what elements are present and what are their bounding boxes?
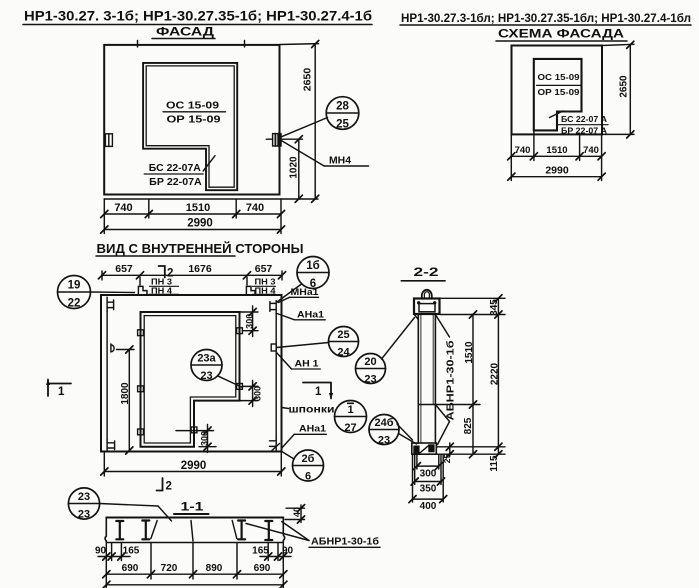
svg-text:350: 350 bbox=[420, 484, 437, 495]
svg-text:22: 22 bbox=[68, 298, 81, 310]
svg-text:23: 23 bbox=[200, 370, 212, 382]
svg-text:ОР 15-09: ОР 15-09 bbox=[538, 87, 580, 97]
svg-text:ПН 3: ПН 3 bbox=[255, 278, 277, 287]
svg-text:2650: 2650 bbox=[619, 75, 630, 98]
svg-text:АБНР1-30-1б: АБНР1-30-1б bbox=[444, 341, 456, 421]
svg-text:890: 890 bbox=[206, 563, 223, 574]
svg-text:шпонки: шпонки bbox=[289, 404, 335, 416]
svg-text:1510: 1510 bbox=[186, 202, 210, 214]
svg-text:300: 300 bbox=[420, 469, 437, 480]
svg-text:2990: 2990 bbox=[545, 165, 569, 177]
svg-text:2220: 2220 bbox=[489, 362, 500, 385]
svg-text:1510: 1510 bbox=[464, 341, 475, 364]
svg-text:2: 2 bbox=[167, 268, 173, 280]
svg-text:825: 825 bbox=[463, 417, 474, 434]
svg-text:720: 720 bbox=[161, 563, 178, 574]
svg-text:28: 28 bbox=[336, 101, 349, 113]
svg-text:ВИД С ВНУТРЕННЕЙ СТОРОНЫ: ВИД С ВНУТРЕННЕЙ СТОРОНЫ bbox=[97, 241, 304, 256]
svg-text:657: 657 bbox=[255, 263, 273, 275]
svg-text:165: 165 bbox=[123, 546, 140, 557]
svg-text:2: 2 bbox=[166, 481, 172, 493]
svg-text:2650: 2650 bbox=[301, 68, 313, 92]
svg-text:400: 400 bbox=[420, 501, 437, 512]
svg-text:23а: 23а bbox=[197, 353, 216, 365]
svg-text:1-1: 1-1 bbox=[181, 502, 205, 514]
svg-text:115: 115 bbox=[489, 455, 500, 472]
svg-text:БР 22-07 А: БР 22-07 А bbox=[561, 126, 607, 136]
svg-text:1: 1 bbox=[347, 404, 353, 416]
svg-text:165: 165 bbox=[252, 546, 269, 557]
svg-text:24: 24 bbox=[337, 347, 350, 359]
svg-text:19: 19 bbox=[68, 280, 81, 292]
svg-text:НР1-30.27. 3-1б; НР1-30.27.35: НР1-30.27. 3-1б; НР1-30.27.35-1б; НР1-30… bbox=[24, 8, 372, 24]
svg-text:ОР 15-09: ОР 15-09 bbox=[167, 114, 221, 126]
svg-text:1676: 1676 bbox=[188, 263, 212, 275]
svg-text:НР1-30.27.3-1бл; НР1-30.27.35-: НР1-30.27.3-1бл; НР1-30.27.35-1бл; НР1-3… bbox=[401, 11, 691, 25]
svg-text:25: 25 bbox=[337, 329, 349, 341]
svg-text:740: 740 bbox=[583, 145, 599, 156]
svg-text:1: 1 bbox=[58, 386, 65, 398]
svg-text:23: 23 bbox=[78, 509, 90, 521]
svg-text:740: 740 bbox=[114, 202, 132, 214]
svg-text:2б: 2б bbox=[302, 453, 315, 465]
svg-text:300: 300 bbox=[199, 431, 209, 446]
svg-text:АНа1: АНа1 bbox=[299, 424, 327, 435]
svg-text:БС 22-07 А: БС 22-07 А bbox=[561, 114, 607, 124]
svg-text:40: 40 bbox=[292, 507, 302, 517]
svg-text:АБНР1-30-1б: АБНР1-30-1б bbox=[311, 536, 380, 548]
svg-text:690: 690 bbox=[122, 563, 139, 574]
svg-text:1: 1 bbox=[315, 386, 322, 398]
svg-text:23: 23 bbox=[364, 374, 376, 386]
svg-text:АНа1: АНа1 bbox=[297, 310, 325, 321]
svg-text:БС 22-07А: БС 22-07А bbox=[149, 162, 201, 174]
svg-text:90: 90 bbox=[95, 546, 107, 557]
svg-text:740: 740 bbox=[515, 145, 531, 156]
svg-text:2-2: 2-2 bbox=[414, 267, 439, 279]
svg-text:СХЕМА ФАСАДА: СХЕМА ФАСАДА bbox=[498, 27, 624, 41]
svg-text:300: 300 bbox=[245, 314, 255, 329]
svg-text:1б: 1б bbox=[306, 260, 320, 272]
svg-text:20: 20 bbox=[364, 356, 376, 368]
svg-text:ФАСАД: ФАСАД bbox=[156, 25, 215, 39]
svg-text:АН 1: АН 1 bbox=[295, 359, 320, 370]
svg-text:1020: 1020 bbox=[289, 156, 300, 179]
svg-text:2990: 2990 bbox=[187, 218, 213, 230]
svg-text:23: 23 bbox=[78, 491, 90, 503]
svg-text:2990: 2990 bbox=[181, 460, 207, 472]
svg-text:27: 27 bbox=[344, 422, 356, 434]
svg-text:БР 22-07А: БР 22-07А bbox=[149, 176, 202, 188]
svg-text:657: 657 bbox=[115, 263, 133, 275]
svg-text:24б: 24б bbox=[374, 417, 393, 429]
svg-text:1800: 1800 bbox=[120, 382, 131, 405]
svg-text:ОС 15-09: ОС 15-09 bbox=[538, 72, 580, 82]
svg-text:25: 25 bbox=[336, 119, 349, 131]
svg-text:МН4: МН4 bbox=[329, 155, 351, 167]
svg-text:МНа1: МНа1 bbox=[291, 287, 320, 298]
svg-text:1510: 1510 bbox=[546, 145, 567, 156]
svg-text:6: 6 bbox=[305, 471, 311, 483]
svg-text:690: 690 bbox=[254, 563, 271, 574]
svg-text:23: 23 bbox=[378, 435, 390, 447]
svg-text:740: 740 bbox=[246, 202, 264, 214]
svg-text:345: 345 bbox=[489, 299, 500, 316]
svg-text:300: 300 bbox=[253, 386, 263, 401]
svg-text:ОС 15-09: ОС 15-09 bbox=[166, 100, 219, 112]
